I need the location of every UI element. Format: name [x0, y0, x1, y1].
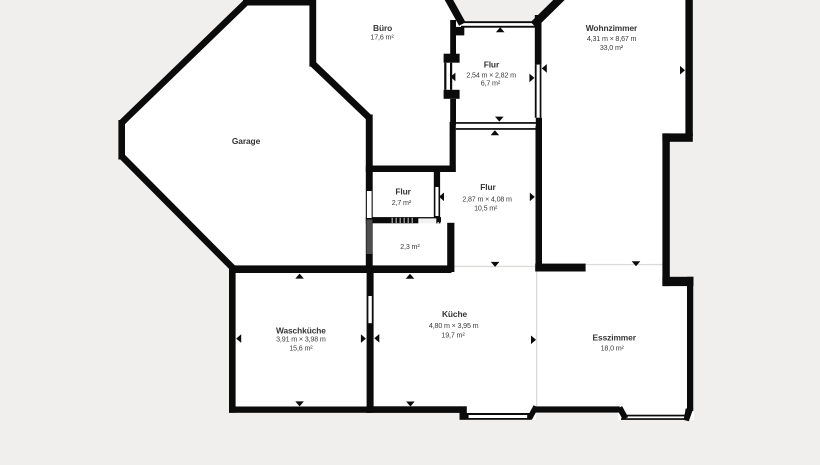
svg-text:Esszimmer: Esszimmer: [593, 333, 637, 343]
svg-text:Küche: Küche: [442, 309, 468, 319]
svg-text:33,0 m²: 33,0 m²: [600, 44, 624, 52]
svg-text:2,3 m²: 2,3 m²: [400, 243, 420, 251]
svg-text:2,7 m²: 2,7 m²: [392, 199, 412, 207]
svg-text:18,0 m²: 18,0 m²: [601, 345, 625, 353]
svg-text:3,91 m × 3,98 m: 3,91 m × 3,98 m: [276, 336, 326, 344]
svg-text:17,6 m²: 17,6 m²: [370, 33, 394, 41]
svg-text:2,87 m × 4,08 m: 2,87 m × 4,08 m: [462, 196, 512, 204]
svg-text:Flur: Flur: [484, 59, 500, 69]
svg-text:u: u: [437, 219, 442, 229]
svg-text:4,31 m × 8,67 m: 4,31 m × 8,67 m: [587, 35, 637, 43]
svg-text:19,7 m²: 19,7 m²: [441, 332, 465, 340]
svg-text:Büro: Büro: [373, 23, 392, 33]
svg-text:Garage: Garage: [232, 136, 261, 146]
svg-text:Flur: Flur: [395, 187, 411, 197]
svg-text:Flur: Flur: [480, 182, 496, 192]
svg-text:4,80 m × 3,95 m: 4,80 m × 3,95 m: [429, 322, 479, 330]
svg-text:10,5 m²: 10,5 m²: [474, 204, 498, 212]
svg-text:15,6 m²: 15,6 m²: [289, 345, 313, 353]
svg-text:Wohnzimmer: Wohnzimmer: [586, 23, 638, 33]
svg-text:2,54 m × 2,82 m: 2,54 m × 2,82 m: [466, 72, 516, 80]
svg-text:Waschküche: Waschküche: [276, 325, 326, 335]
svg-text:6,7 m²: 6,7 m²: [481, 80, 501, 88]
